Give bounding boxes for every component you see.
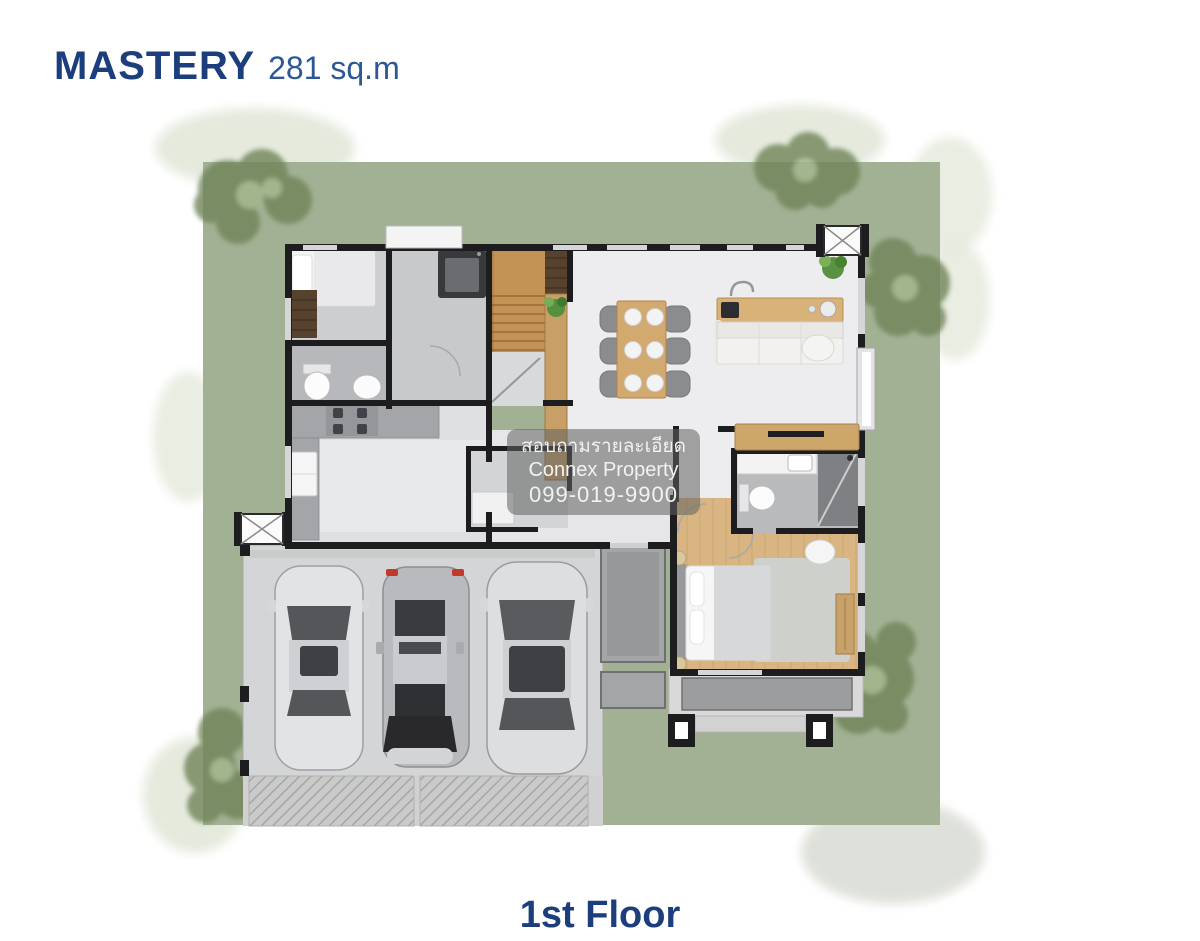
entry-canopy <box>386 226 462 248</box>
ac-unit-top-right <box>816 224 869 257</box>
plan-area: 281 sq.m <box>268 50 400 87</box>
tv-console <box>735 424 859 450</box>
car-3 <box>480 562 594 774</box>
dining-set <box>600 301 690 398</box>
car-1 <box>268 566 370 770</box>
entry-threshold <box>610 543 648 548</box>
driveway <box>243 776 603 826</box>
watermark-line1: สอบถามรายละเอียด <box>521 435 686 458</box>
kitchen-inner-floor <box>319 440 486 532</box>
car-2 <box>376 567 469 767</box>
entry-pads <box>601 546 665 708</box>
floor-label: 1st Floor <box>0 894 1200 937</box>
ac-unit-bottom-left <box>234 512 290 546</box>
watermark-badge: สอบถามรายละเอียด Connex Property 099-019… <box>507 429 700 515</box>
watermark-line3: 099-019-9900 <box>529 482 678 509</box>
plan-title: MASTERY 281 sq.m <box>54 44 400 89</box>
plan-name: MASTERY <box>54 44 255 89</box>
floorplan-page: MASTERY 281 sq.m <box>0 0 1200 941</box>
maid-wardrobe <box>289 290 317 338</box>
washer <box>438 250 486 298</box>
sofa <box>714 320 843 366</box>
watermark-line2: Connex Property <box>528 458 678 482</box>
